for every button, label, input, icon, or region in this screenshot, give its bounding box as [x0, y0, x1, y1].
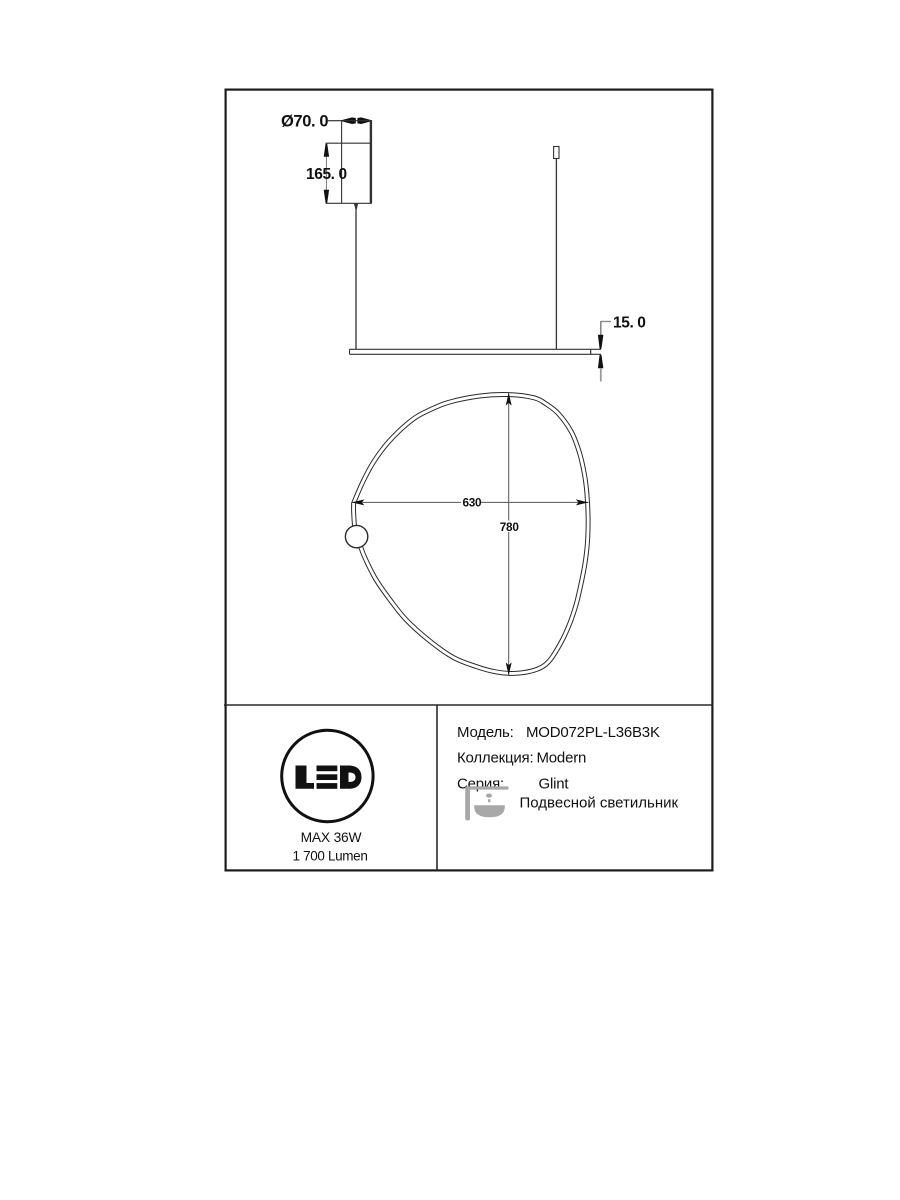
svg-text:Ø70. 0: Ø70. 0: [281, 113, 328, 131]
svg-text:1 700 Lumen: 1 700 Lumen: [293, 849, 368, 864]
svg-text:Модель:: Модель:: [457, 724, 514, 741]
svg-text:MOD072PL-L36B3K: MOD072PL-L36B3K: [526, 724, 660, 741]
svg-text:780: 780: [500, 520, 520, 534]
svg-text:MAX 36W: MAX 36W: [301, 830, 362, 845]
svg-text:Серия:: Серия:: [457, 776, 504, 793]
svg-text:Подвесной светильник: Подвесной светильник: [520, 795, 679, 812]
svg-text:15. 0: 15. 0: [613, 315, 645, 332]
svg-text:Modern: Modern: [537, 750, 587, 767]
svg-text:Glint: Glint: [539, 776, 570, 793]
svg-text:165. 0: 165. 0: [306, 166, 347, 183]
svg-text:Коллекция:: Коллекция:: [457, 750, 533, 767]
svg-text:630: 630: [463, 495, 483, 509]
